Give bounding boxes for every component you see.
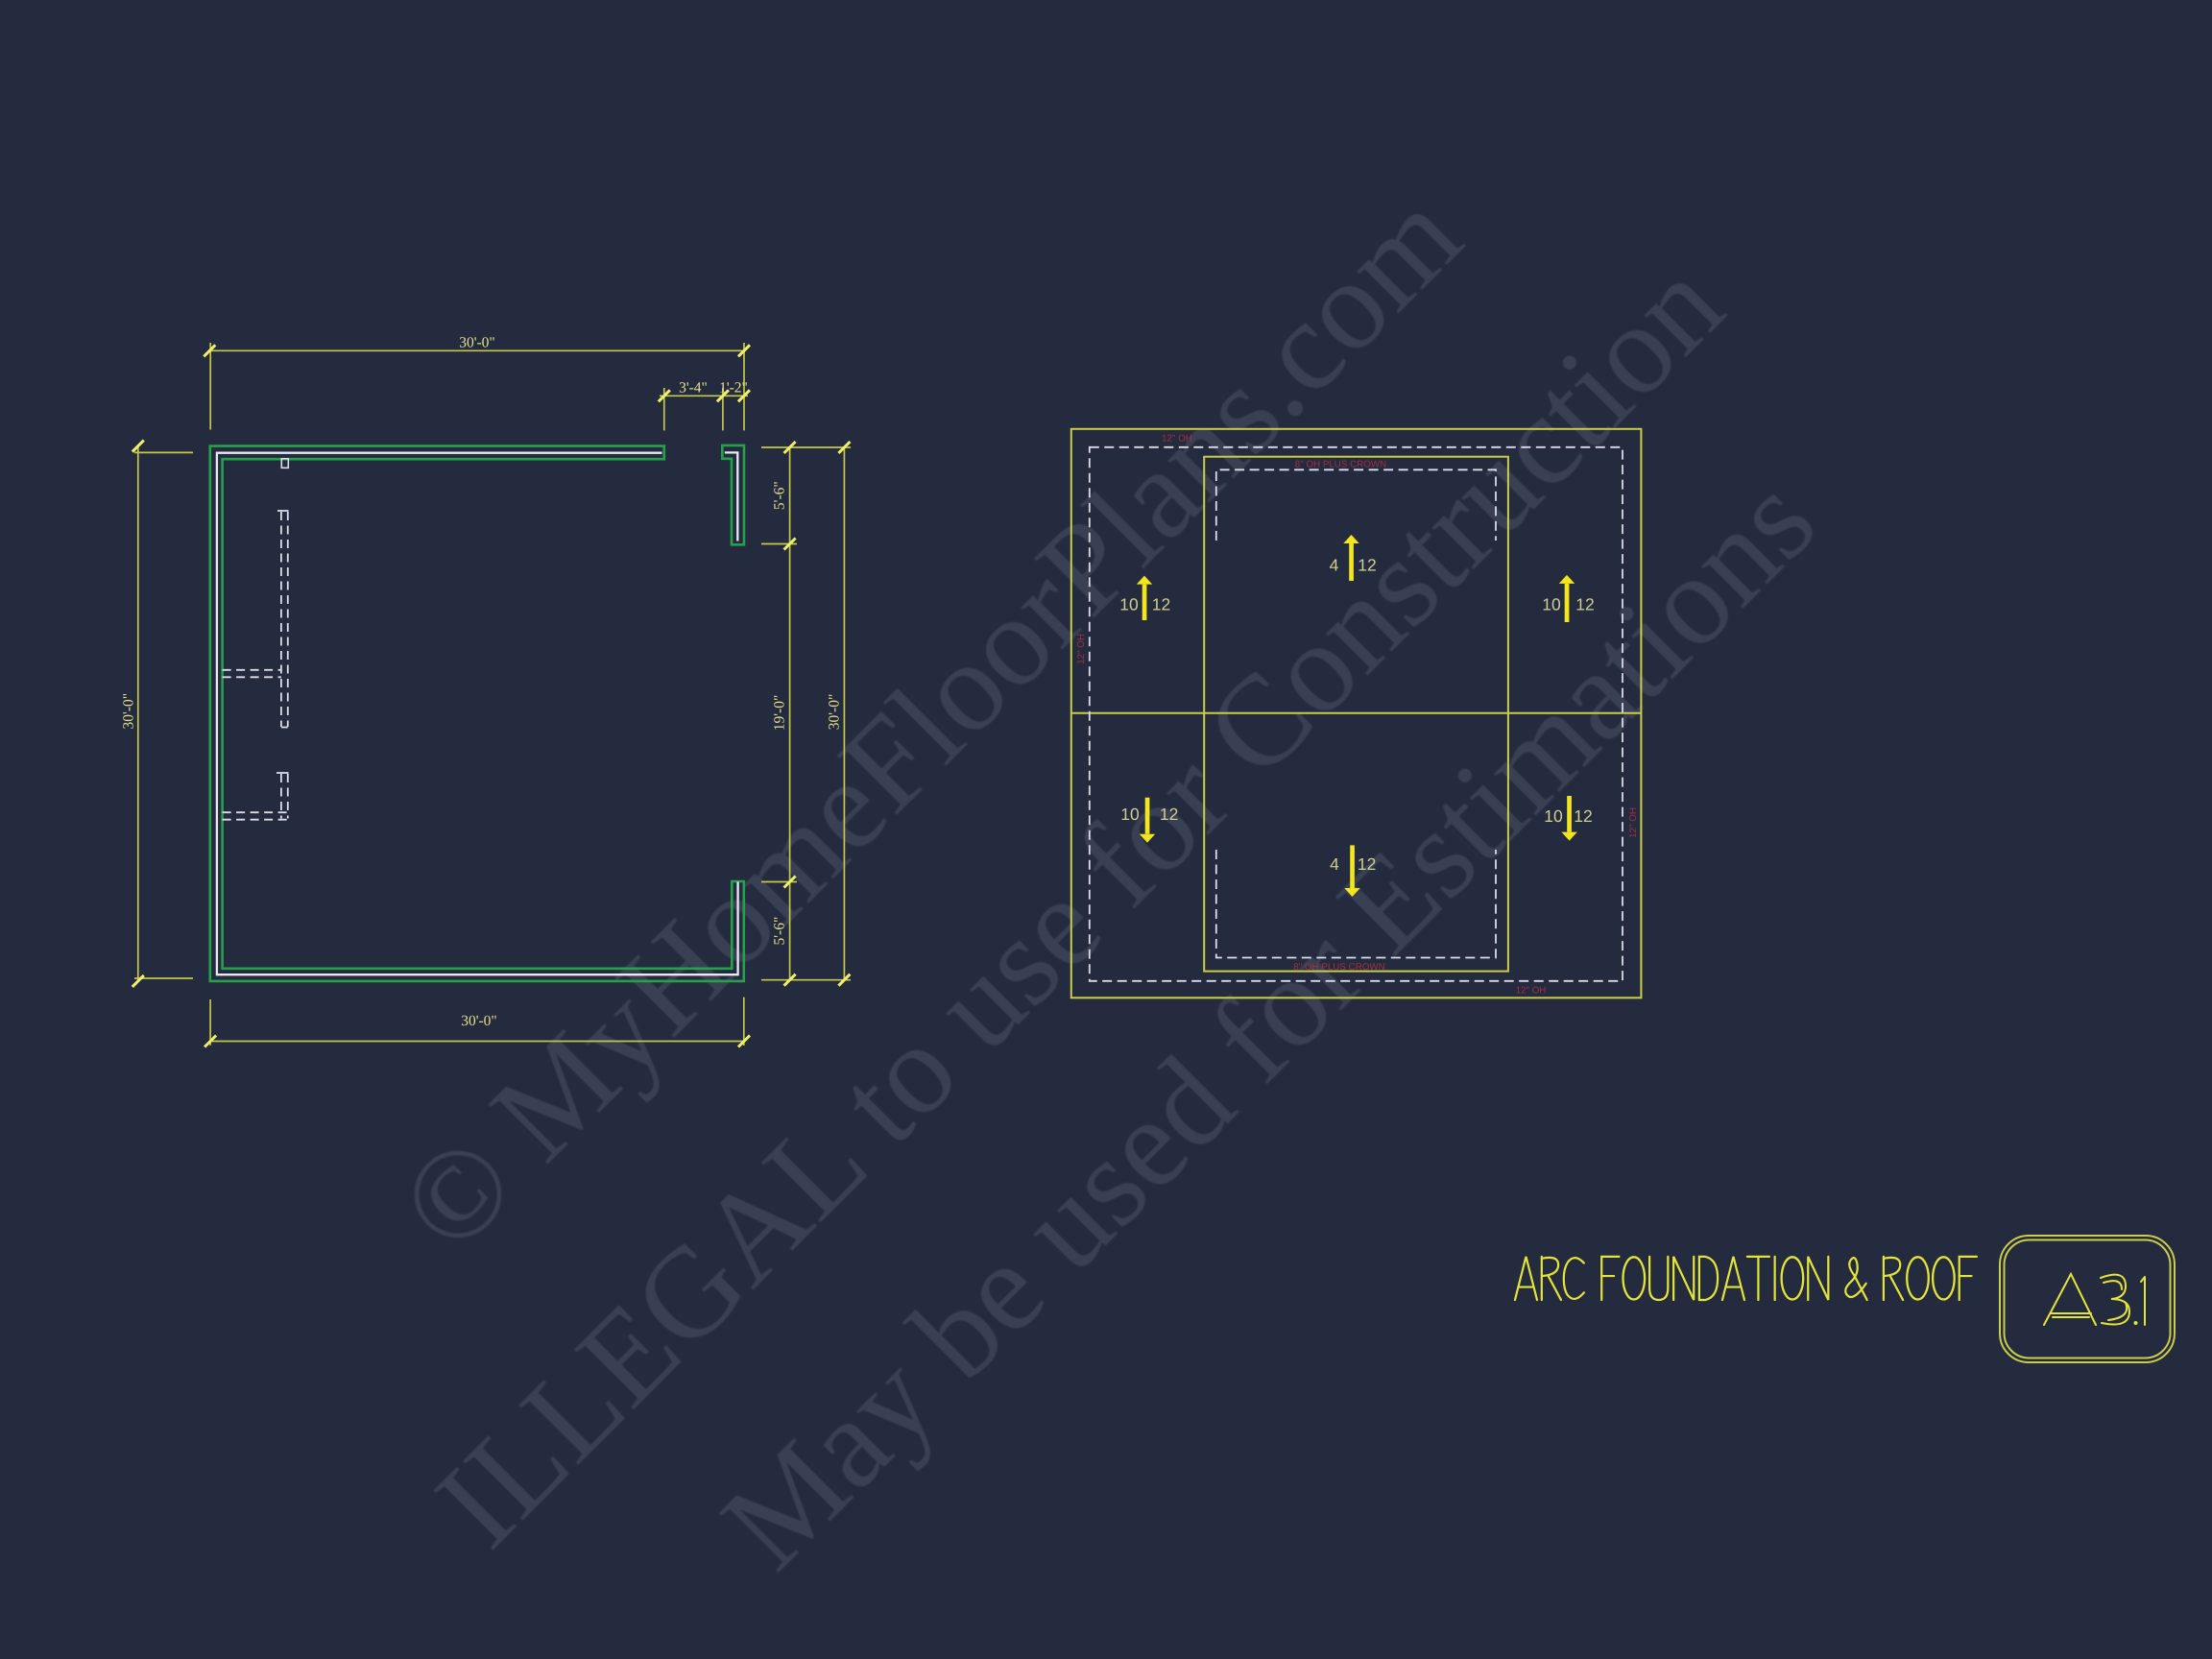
svg-text:12" OH: 12" OH bbox=[1628, 807, 1639, 838]
svg-text:5'-6": 5'-6" bbox=[772, 917, 788, 946]
svg-text:30'-0": 30'-0" bbox=[827, 694, 843, 731]
svg-text:10: 10 bbox=[1542, 595, 1561, 614]
svg-text:30'-0": 30'-0" bbox=[461, 1013, 497, 1029]
svg-text:12: 12 bbox=[1358, 854, 1376, 874]
svg-text:5'-6": 5'-6" bbox=[772, 481, 788, 510]
svg-text:30'-0": 30'-0" bbox=[459, 335, 495, 351]
svg-text:30'-0": 30'-0" bbox=[121, 693, 137, 730]
svg-text:19'-0": 19'-0" bbox=[772, 695, 788, 732]
svg-text:10: 10 bbox=[1544, 806, 1563, 826]
svg-text:12: 12 bbox=[1574, 806, 1592, 826]
svg-text:8" OH PLUS CROWN: 8" OH PLUS CROWN bbox=[1293, 962, 1384, 973]
svg-text:12: 12 bbox=[1152, 595, 1170, 614]
svg-text:8" OH PLUS CROWN: 8" OH PLUS CROWN bbox=[1295, 459, 1386, 469]
svg-text:12: 12 bbox=[1575, 595, 1594, 614]
svg-text:10: 10 bbox=[1120, 805, 1140, 824]
svg-text:12" OH: 12" OH bbox=[1162, 434, 1192, 445]
svg-text:4: 4 bbox=[1330, 556, 1339, 575]
svg-text:12: 12 bbox=[1358, 556, 1376, 575]
svg-text:12" OH: 12" OH bbox=[1076, 634, 1087, 664]
svg-text:1'-2": 1'-2" bbox=[719, 380, 748, 397]
svg-text:10: 10 bbox=[1119, 595, 1139, 614]
svg-text:4: 4 bbox=[1330, 854, 1339, 874]
svg-text:12: 12 bbox=[1160, 805, 1178, 824]
svg-text:3'-4": 3'-4" bbox=[679, 380, 708, 397]
svg-text:12" OH: 12" OH bbox=[1516, 986, 1547, 997]
